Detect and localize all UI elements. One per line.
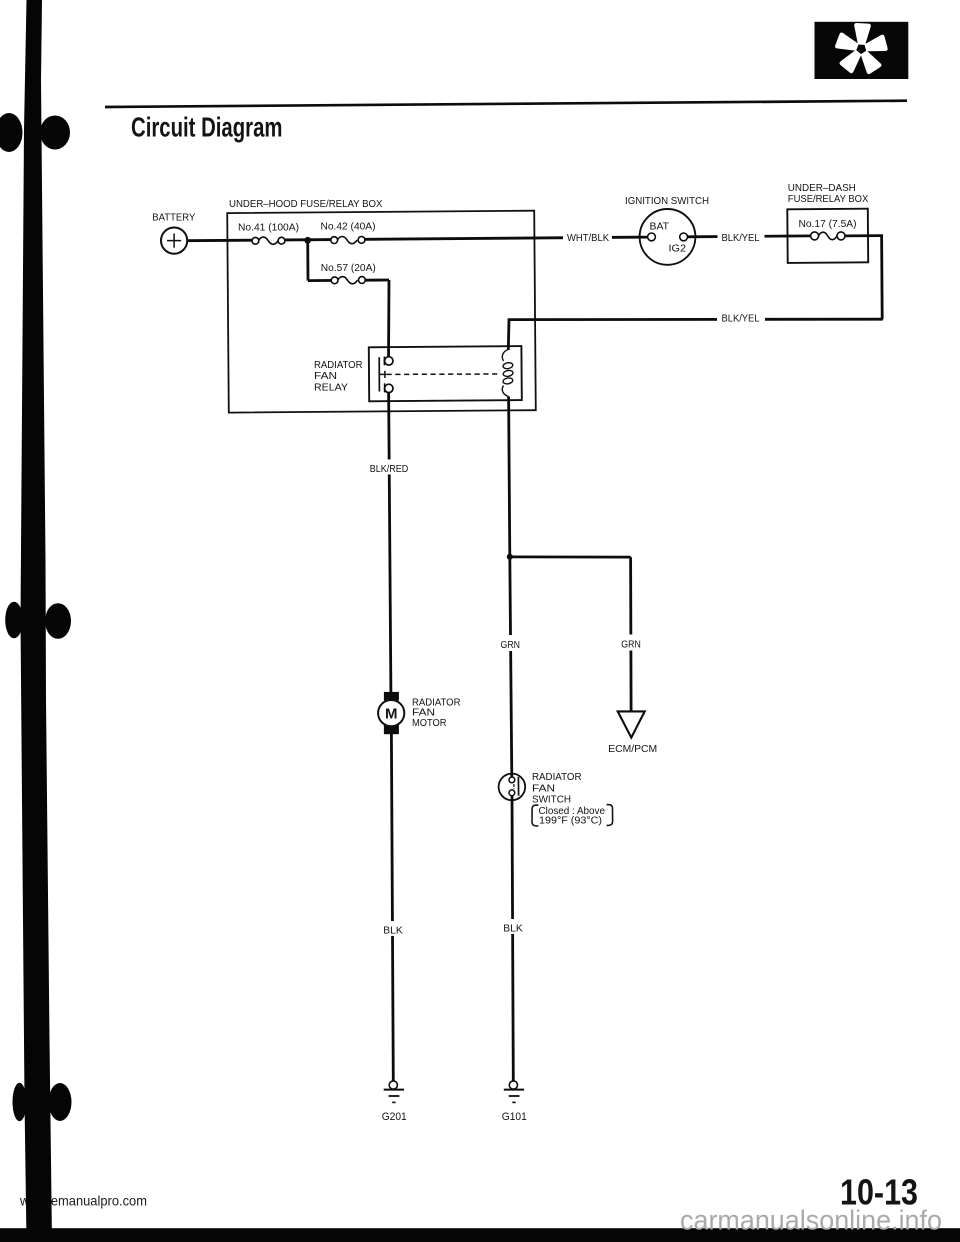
- svg-text:FAN: FAN: [532, 783, 555, 794]
- svg-text:BAT: BAT: [650, 221, 670, 232]
- svg-text:BLK: BLK: [383, 926, 403, 937]
- svg-text:MOTOR: MOTOR: [412, 718, 447, 729]
- svg-text:No.57 (20A): No.57 (20A): [321, 263, 376, 274]
- svg-text:GRN: GRN: [501, 640, 521, 651]
- svg-text:FAN: FAN: [314, 371, 337, 382]
- svg-text:BLK/RED: BLK/RED: [370, 464, 409, 475]
- svg-text:No.42 (40A): No.42 (40A): [321, 222, 376, 233]
- svg-text:RELAY: RELAY: [314, 382, 348, 393]
- svg-text:ECM/PCM: ECM/PCM: [608, 744, 657, 755]
- svg-text:No.41 (100A): No.41 (100A): [238, 222, 299, 233]
- svg-text:GRN: GRN: [621, 640, 641, 651]
- svg-text:UNDER–HOOD FUSE/RELAY BOX: UNDER–HOOD FUSE/RELAY BOX: [229, 199, 383, 210]
- svg-text:UNDER–DASH: UNDER–DASH: [788, 183, 856, 194]
- svg-text:carmanualsonline.info: carmanualsonline.info: [680, 1205, 942, 1236]
- svg-text:No.17 (7.5A): No.17 (7.5A): [799, 219, 857, 230]
- svg-text:199°F (93°C): 199°F (93°C): [539, 816, 602, 827]
- svg-text:FUSE/RELAY BOX: FUSE/RELAY BOX: [788, 194, 869, 205]
- svg-text:IGNITION SWITCH: IGNITION SWITCH: [625, 196, 709, 207]
- svg-text:IG2: IG2: [669, 244, 687, 255]
- svg-text:BATTERY: BATTERY: [152, 213, 195, 224]
- svg-text:BLK/YEL: BLK/YEL: [722, 233, 760, 244]
- svg-text:BLK: BLK: [503, 924, 523, 935]
- svg-text:RADIATOR: RADIATOR: [532, 772, 582, 783]
- svg-text:BLK/YEL: BLK/YEL: [722, 313, 760, 324]
- svg-text:G101: G101: [502, 1111, 527, 1123]
- svg-text:Circuit Diagram: Circuit Diagram: [131, 111, 283, 142]
- svg-text:WHT/BLK: WHT/BLK: [567, 233, 609, 244]
- svg-text:M: M: [385, 705, 398, 722]
- svg-text:RADIATOR: RADIATOR: [314, 360, 363, 371]
- svg-text:FAN: FAN: [412, 708, 435, 719]
- svg-text:G201: G201: [382, 1111, 407, 1123]
- svg-text:SWITCH: SWITCH: [532, 794, 571, 805]
